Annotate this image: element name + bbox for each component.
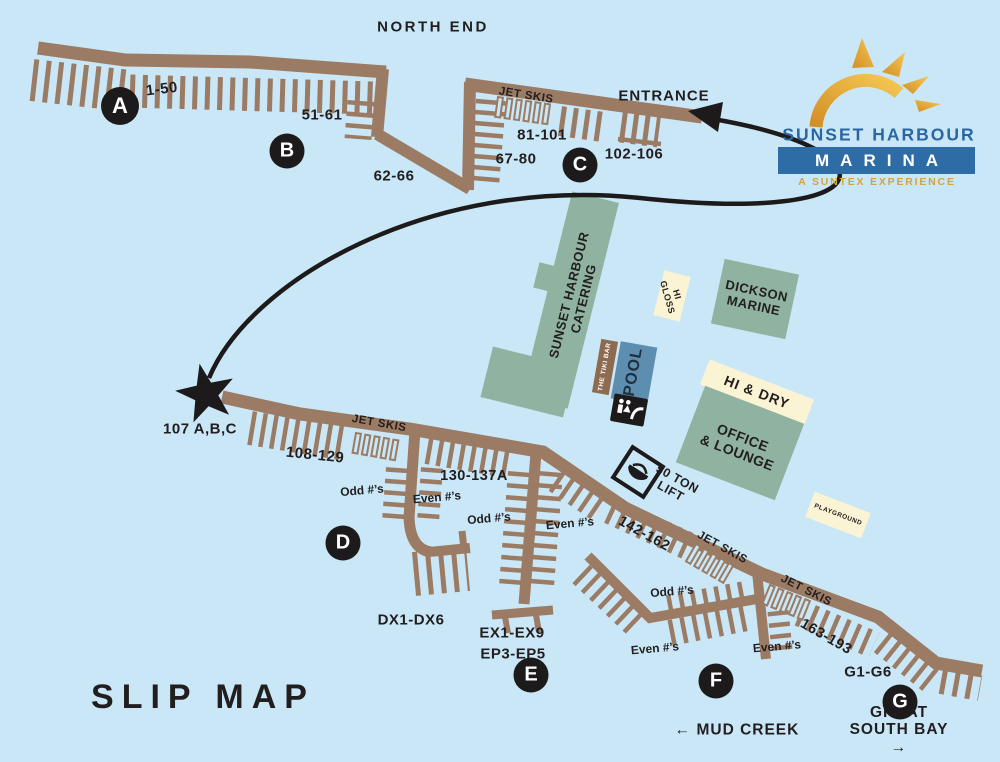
restroom-icon [610, 393, 648, 426]
slip-map-title: SLIP MAP [91, 678, 315, 716]
sun-logo-icon [816, 38, 941, 127]
slips-g1-g6: G1-G6 [844, 665, 892, 682]
slips-81-101: 81-101 [517, 128, 567, 145]
dock-badge-d: D [326, 526, 361, 561]
mud-creek-label: ← MUD CREEK [675, 721, 800, 738]
entrance-label: ENTRANCE [618, 89, 709, 106]
dock-badge-a: A [101, 87, 139, 125]
north-end-label: NORTH END [377, 20, 489, 37]
slips-dx1-dx6: DX1-DX6 [378, 613, 445, 630]
dock-badge-e: E [514, 658, 549, 693]
slips-51-61: 51-61 [302, 108, 343, 125]
slips-130-137a: 130-137A [440, 468, 508, 484]
slips-107-abc: 107 A,B,C [163, 422, 237, 439]
slips-67-80: 67-80 [496, 152, 537, 169]
slips-ex1-ex9: EX1-EX9 [479, 626, 544, 643]
dock-badge-f: F [699, 664, 734, 699]
slip-map: SUNSET HARBOUR CATERINGHI GLOSSDICKSON M… [0, 0, 1000, 762]
dock-badge-b: B [270, 134, 305, 169]
arrowhead [688, 102, 723, 132]
slips-62-66: 62-66 [374, 169, 415, 186]
dock-badge-g: G [883, 685, 918, 720]
dock-badge-c: C [563, 148, 598, 183]
slips-102-106: 102-106 [605, 147, 664, 164]
